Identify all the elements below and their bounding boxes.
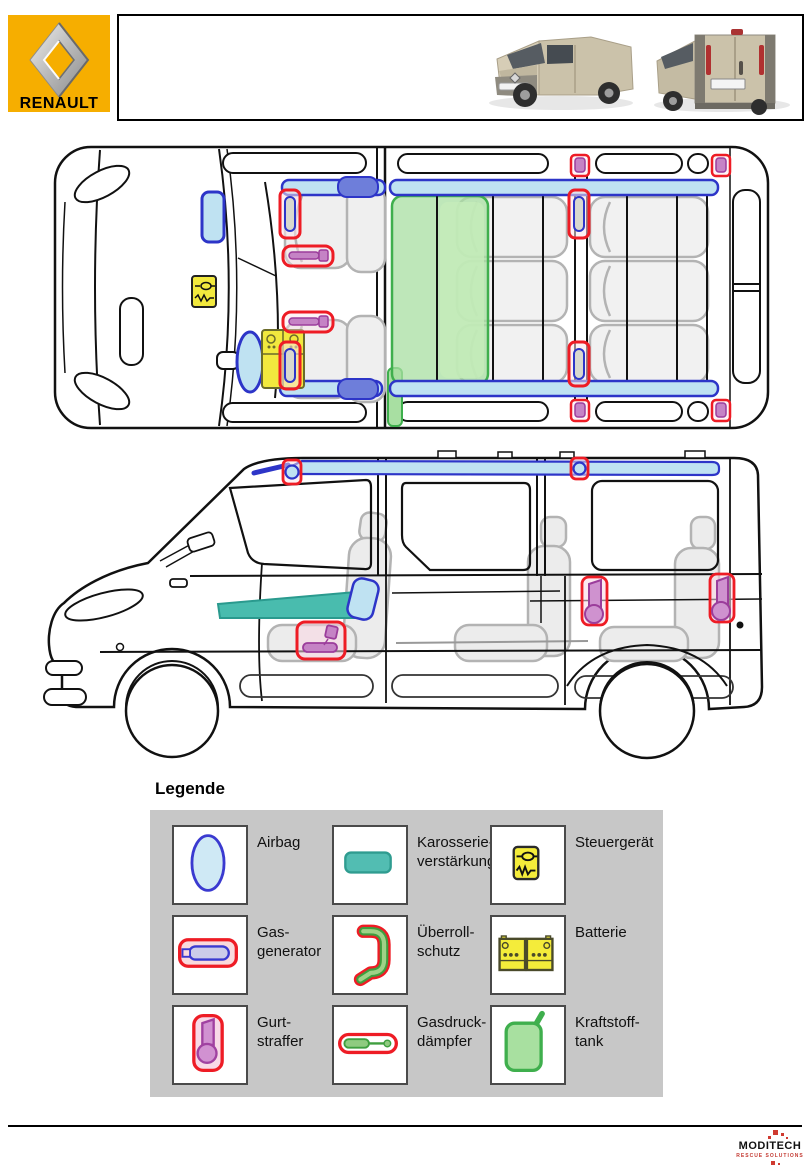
control-unit-marker [192, 276, 216, 307]
gas-generator-symbol-icon [172, 915, 248, 995]
rear-door-windows [733, 190, 760, 383]
top-view-diagram [40, 140, 775, 440]
rescue-sheet-page: { "header": { "brand": "RENAULT" }, "leg… [0, 0, 810, 1170]
footer-rule [8, 1125, 802, 1127]
renault-diamond-icon: RENAULT [8, 15, 110, 112]
legend-item-karosserieverstaerkung: Karosserie-verstärkung [332, 825, 490, 915]
moditech-tagline: RESCUE SOLUTIONS [731, 1153, 809, 1159]
moditech-pixel [781, 1133, 784, 1136]
driver-airbag-marker [237, 332, 263, 392]
van-photo-rear [647, 21, 797, 116]
moditech-wordmark: MODITECH [731, 1140, 809, 1152]
moditech-pixel [768, 1136, 771, 1139]
renault-logo: RENAULT [8, 15, 110, 112]
legend-item-batterie: Batterie [490, 915, 685, 1005]
front-wheel [126, 665, 218, 757]
legend-item-ueberrollschutz: Überroll-schutz [332, 915, 490, 1005]
control-unit-symbol-icon [490, 825, 566, 905]
passenger-airbag-marker [202, 192, 224, 242]
side-view-diagram [40, 443, 775, 768]
van-photo-front [479, 23, 644, 115]
rear-wheel [600, 664, 694, 758]
rollover-protection-symbol-icon [332, 915, 408, 995]
legend-item-gasdruckdaempfer: Gasdruck-dämpfer [332, 1005, 490, 1095]
legend-panel: Airbag Karosserie-verstärkung Steuergerä… [150, 810, 663, 1097]
moditech-logo: MODITECH RESCUE SOLUTIONS [731, 1130, 809, 1168]
belt-pretensioner-symbol-icon [172, 1005, 248, 1085]
legend-title: Legende [155, 779, 225, 799]
battery-symbol-icon [490, 915, 566, 995]
reinforcement-symbol-icon [332, 825, 408, 905]
moditech-pixel [778, 1163, 780, 1165]
fuel-tank-symbol-icon [490, 1005, 566, 1085]
moditech-pixel [771, 1161, 775, 1165]
legend-item-airbag: Airbag [172, 825, 332, 915]
legend-item-steuergeraet: Steuergerät [490, 825, 685, 915]
header-frame [117, 14, 804, 121]
legend-item-gurtstraffer: Gurt-straffer [172, 1005, 332, 1095]
legend-item-kraftstofftank: Kraftstoff-tank [490, 1005, 685, 1095]
grille-slot [120, 298, 143, 365]
moditech-pixel [773, 1130, 778, 1135]
moditech-pixel [786, 1137, 788, 1139]
legend-item-gasgenerator: Gas-generator [172, 915, 332, 1005]
airbag-symbol-icon [172, 825, 248, 905]
renault-wordmark: RENAULT [20, 95, 99, 112]
gas-strut-symbol-icon [332, 1005, 408, 1085]
curtain-airbag-side [254, 461, 719, 475]
